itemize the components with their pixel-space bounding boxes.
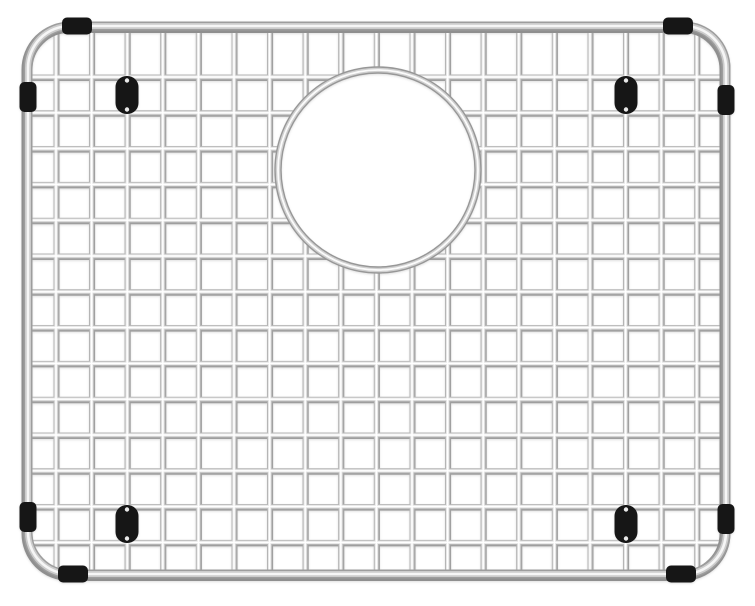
product-photo: [0, 0, 755, 606]
rubber-bumper-bottom: [666, 566, 696, 583]
rubber-foot: [615, 505, 638, 543]
rubber-bumper-top: [663, 18, 693, 35]
rubber-bumper-right: [718, 85, 735, 115]
rubber-bumper-left: [20, 502, 37, 532]
rubber-foot: [116, 505, 139, 543]
rubber-foot: [116, 76, 139, 114]
rubber-bumper-left: [20, 82, 37, 112]
rubber-bumper-top: [62, 18, 92, 35]
rubber-foot: [615, 76, 638, 114]
rubber-bumper-bottom: [58, 566, 88, 583]
rubber-bumper-right: [718, 504, 735, 534]
sink-grid-image: [0, 0, 755, 606]
